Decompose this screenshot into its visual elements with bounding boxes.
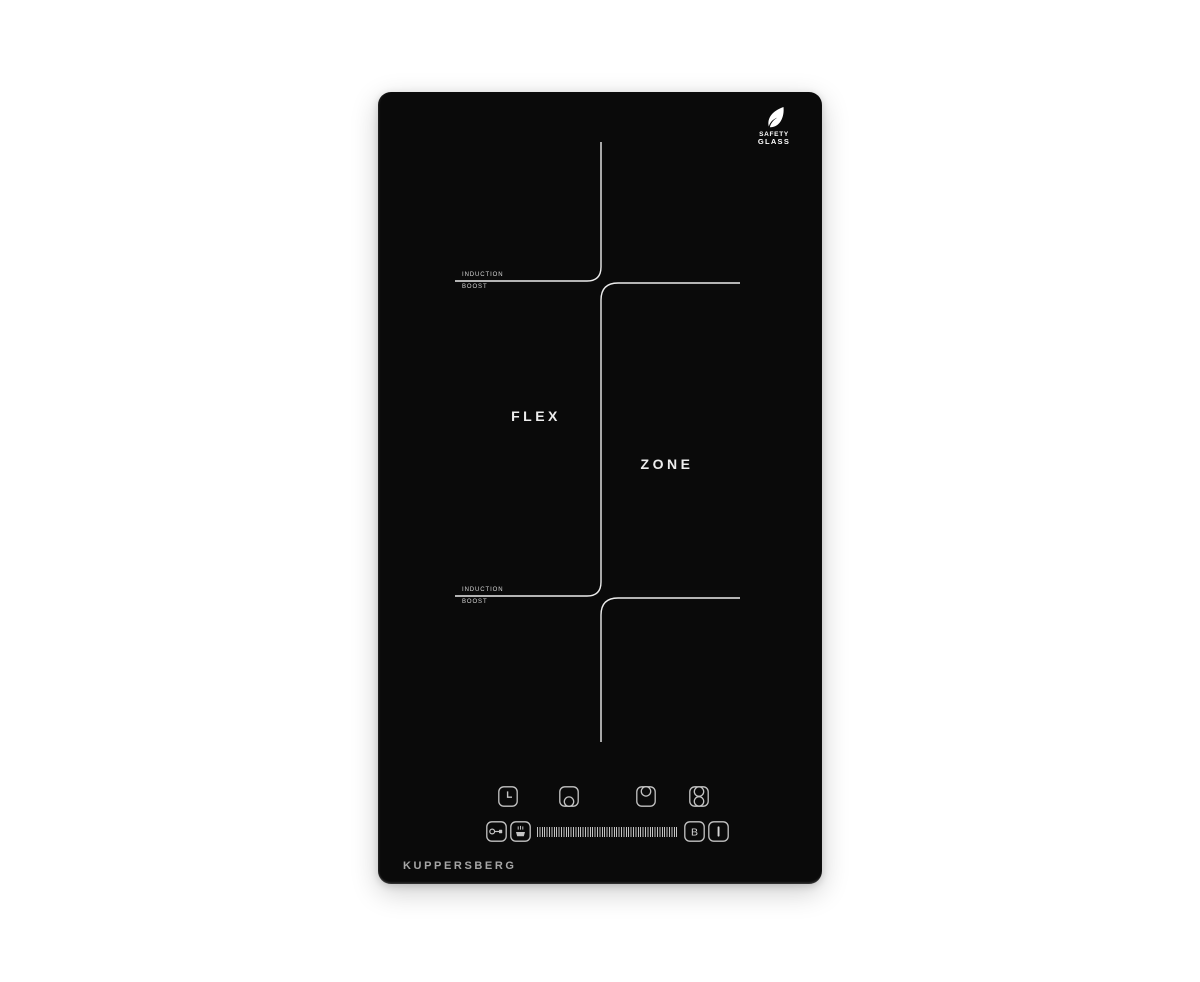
boost-label-top: BOOST bbox=[462, 284, 488, 290]
bottom-zone-line bbox=[601, 598, 740, 742]
safety-badge-line2: GLASS bbox=[734, 138, 814, 146]
flex-label: FLEX bbox=[486, 408, 586, 424]
middle-divider-line bbox=[455, 283, 740, 596]
flex-bridge-zones-icon bbox=[689, 786, 709, 807]
top-zone-line bbox=[455, 142, 601, 281]
induction-label-top: INDUCTION bbox=[462, 272, 503, 278]
induction-label-bottom: INDUCTION bbox=[462, 587, 503, 593]
safety-glass-badge: SAFETY GLASS bbox=[734, 131, 814, 146]
timer-clock-icon bbox=[498, 786, 518, 807]
power-level-slider bbox=[537, 827, 677, 837]
rear-zone-icon bbox=[636, 786, 656, 807]
boost-button: B bbox=[684, 821, 705, 842]
leaf-icon bbox=[765, 106, 785, 129]
front-zone-icon bbox=[559, 786, 579, 807]
power-button bbox=[708, 821, 729, 842]
zone-label: ZONE bbox=[617, 456, 717, 472]
product-photo: SAFETY GLASS INDUCTION BOOST INDUCTION B… bbox=[0, 0, 1200, 982]
power-button-bar bbox=[718, 826, 720, 836]
key-lock-icon bbox=[486, 821, 507, 842]
keep-warm-icon bbox=[510, 821, 531, 842]
boost-label-bottom: BOOST bbox=[462, 599, 488, 605]
boost-button-label: B bbox=[691, 826, 698, 838]
cooktop-panel: SAFETY GLASS INDUCTION BOOST INDUCTION B… bbox=[378, 92, 822, 884]
flex-zone-outlines bbox=[378, 92, 822, 884]
brand-logotype: KUPPERSBERG bbox=[403, 860, 517, 872]
